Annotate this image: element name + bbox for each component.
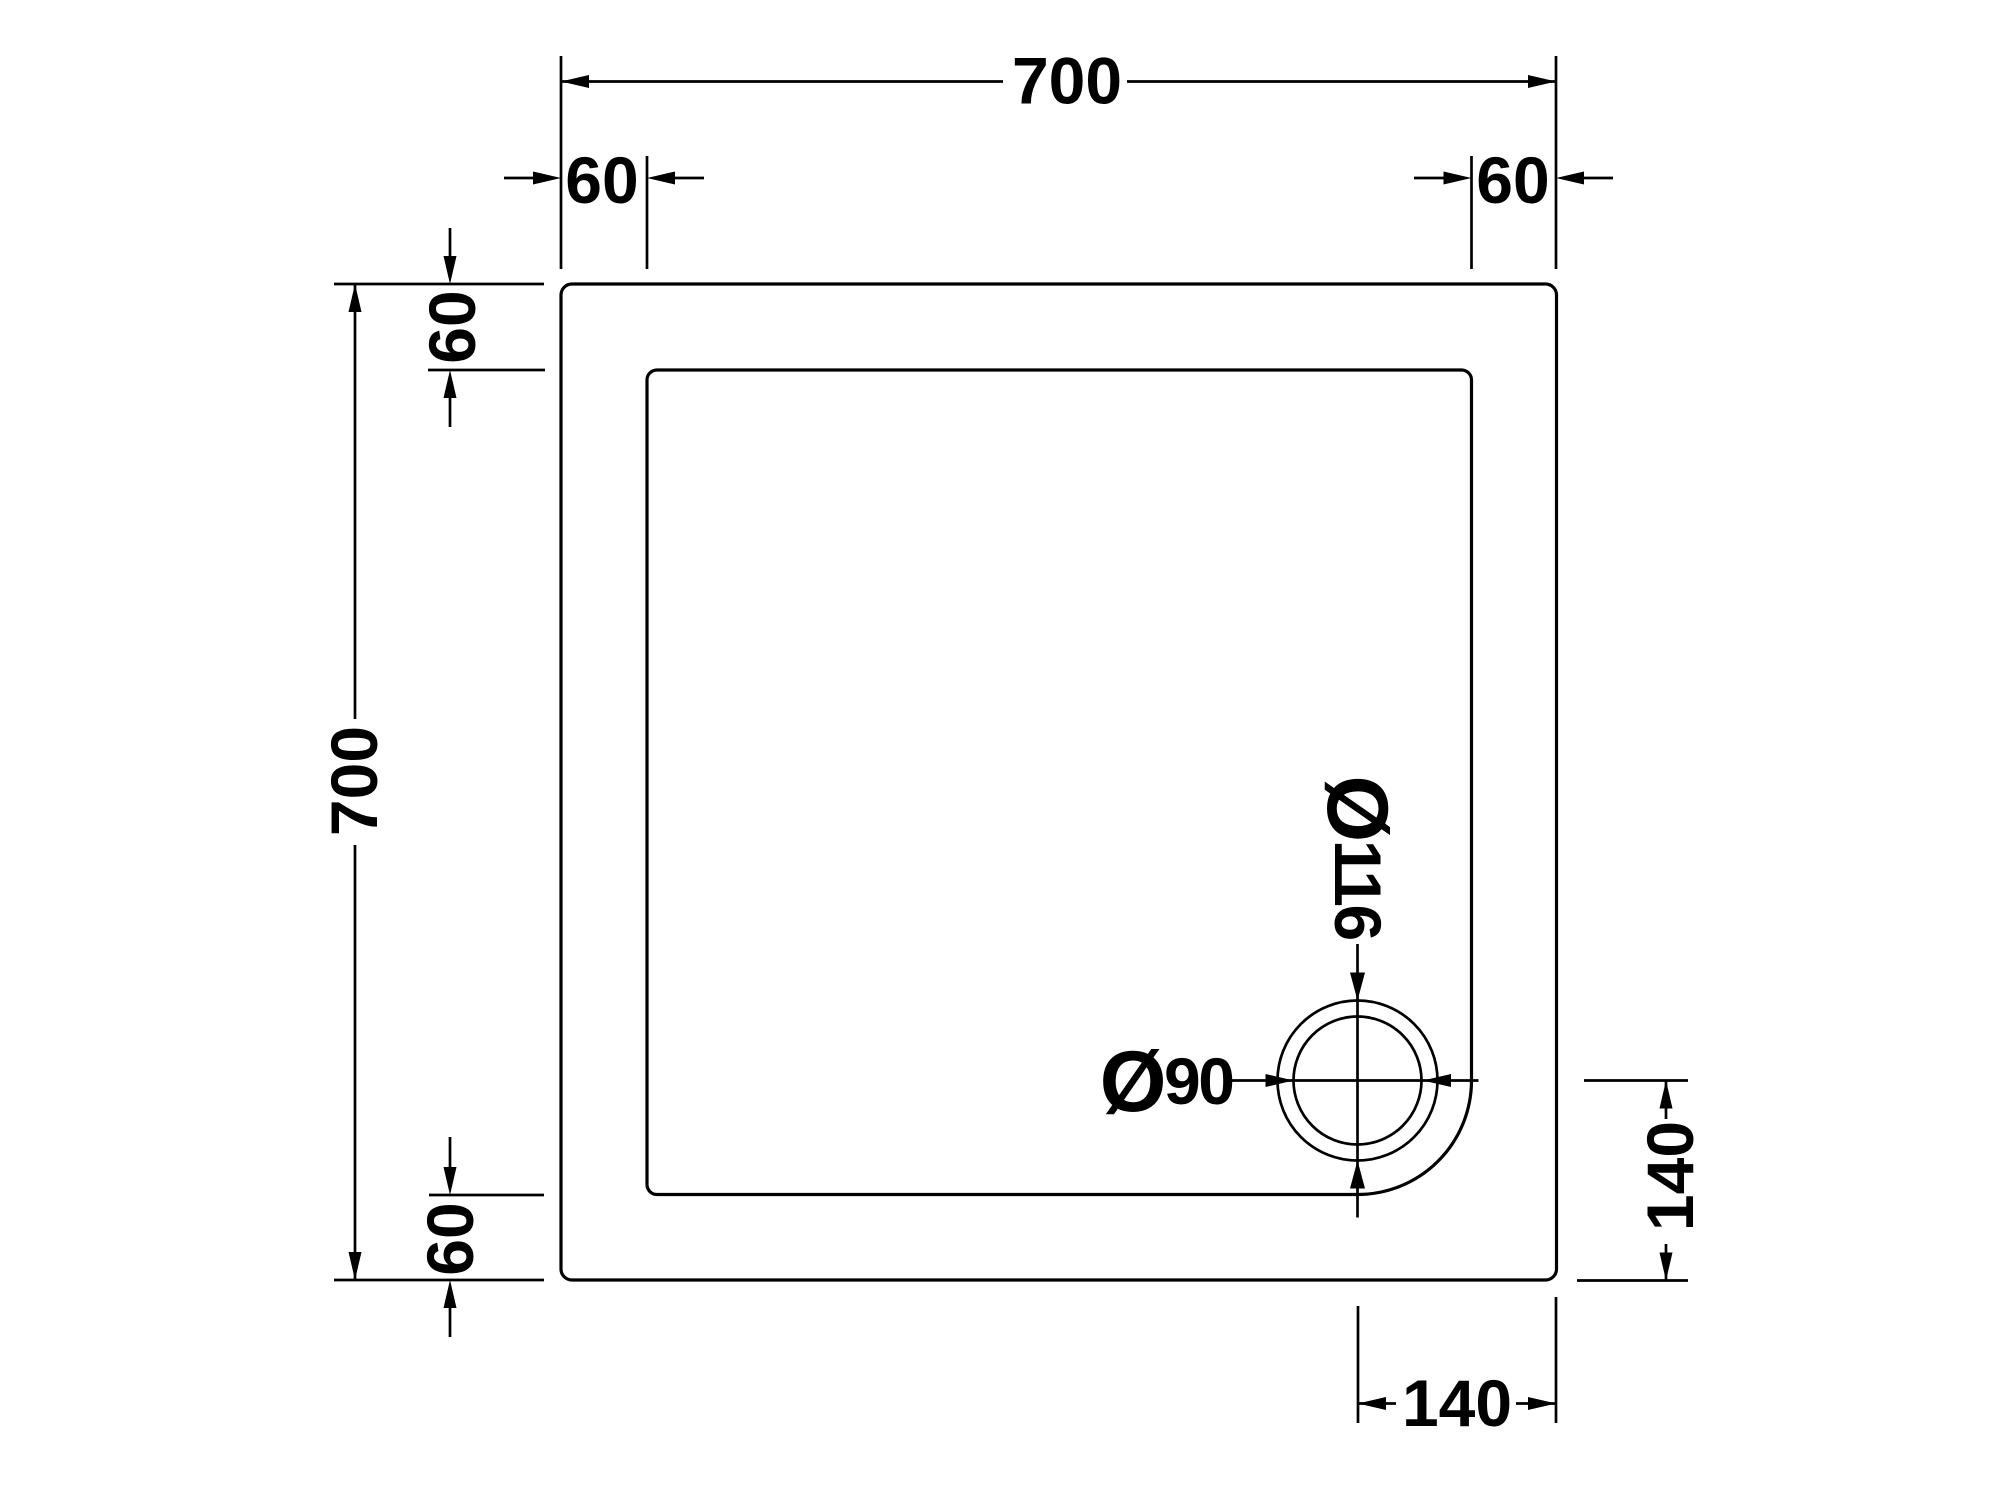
svg-text:60: 60 bbox=[413, 1202, 487, 1275]
svg-text:60: 60 bbox=[415, 290, 489, 363]
svg-text:Ø90: Ø90 bbox=[1100, 1034, 1233, 1130]
svg-text:140: 140 bbox=[1633, 1121, 1707, 1231]
svg-text:700: 700 bbox=[1012, 44, 1122, 118]
svg-text:60: 60 bbox=[1476, 143, 1549, 217]
svg-text:140: 140 bbox=[1402, 1366, 1512, 1440]
svg-text:60: 60 bbox=[565, 143, 638, 217]
svg-text:Ø116: Ø116 bbox=[1309, 775, 1405, 939]
svg-text:700: 700 bbox=[317, 726, 391, 836]
